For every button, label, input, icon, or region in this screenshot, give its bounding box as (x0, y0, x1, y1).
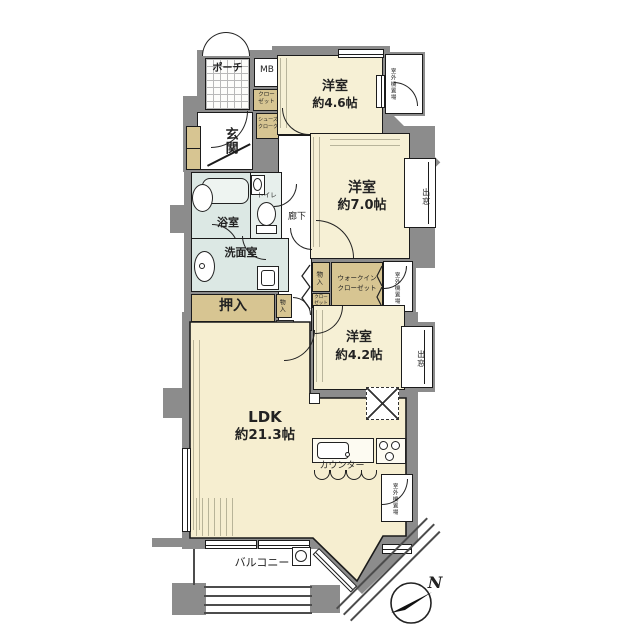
wall-panel-icon (309, 393, 320, 404)
window (338, 49, 384, 58)
washbasin-tap (199, 263, 205, 269)
toilet-sink-bowl (253, 178, 262, 191)
balcony-railing (204, 595, 312, 597)
entry-closet-label-line1: クロー (253, 92, 280, 99)
balcony-railing (204, 586, 312, 588)
oshiire-label: 押入 (210, 298, 256, 315)
stove-burner (379, 441, 388, 450)
window (376, 75, 385, 108)
balcony-pillar (310, 585, 340, 613)
kitchen-tap (345, 452, 350, 457)
pipe-space (366, 387, 399, 420)
window (205, 540, 257, 549)
washing-machine-inner (261, 270, 275, 286)
room-western-7-0-name: 洋室 (331, 180, 393, 197)
floor-plan: ポーチ MB クロー ゼット シューズ クローク 玄関 洋室 約4.6帖 室外機… (0, 0, 640, 640)
window-line (187, 449, 188, 531)
balcony-railing (204, 604, 312, 606)
entrance-shoe-cabinet (186, 126, 201, 170)
bay-window-1 (404, 158, 436, 228)
wall-pillar (170, 205, 184, 233)
entry-closet-label-line2: ゼット (253, 99, 280, 106)
stove-burner (385, 452, 394, 461)
stove-burner (391, 441, 400, 450)
window-line (339, 54, 383, 55)
balcony-railing (204, 612, 312, 614)
toilet-tank (256, 225, 277, 234)
entry-door-arc-left (202, 32, 226, 56)
porch-label: ポーチ (206, 63, 249, 75)
window (182, 448, 191, 532)
hatch-decoration (196, 498, 238, 536)
kitchen-sink (317, 442, 349, 459)
window-line (206, 545, 256, 546)
divider-line (187, 148, 200, 149)
hatch-decoration (330, 136, 400, 146)
wall-tick (152, 538, 184, 547)
balcony-label: バルコニー (224, 556, 300, 569)
balcony-pillar (172, 583, 206, 615)
storage-right-label: 物入 (278, 296, 285, 316)
entry-door-arc-right (226, 32, 250, 56)
balcony-post-line (193, 549, 195, 585)
bath-basin (192, 184, 213, 212)
room-western-4-6-name: 洋室 (306, 79, 364, 95)
bay-window-label: 出窓 (416, 343, 426, 375)
bay-window-label: 出窓 (421, 181, 431, 213)
ldk-size: 約21.3帖 (228, 427, 302, 443)
window-line (259, 545, 309, 546)
storage-middle-label: 物入 (314, 265, 322, 291)
room-western-7-0-size: 約7.0帖 (327, 198, 397, 214)
closet-tiny-line1: クロー (312, 295, 330, 300)
wall-pillar (163, 388, 183, 418)
window-line (381, 76, 382, 107)
compass-north-label: N (426, 573, 444, 592)
room-western-4-6-size: 約4.6帖 (302, 96, 368, 110)
ldk-name: LDK (234, 408, 296, 426)
hallway-label: 廊下 (284, 212, 310, 223)
bifold-door-icon (375, 265, 384, 309)
